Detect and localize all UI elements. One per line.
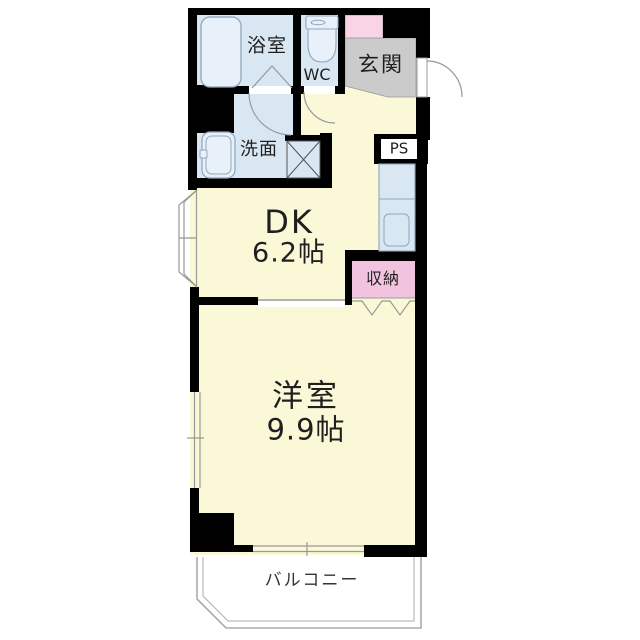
- wall-left-lower: [190, 488, 199, 552]
- toilet-icon: [306, 16, 338, 62]
- wall-wc-right: [338, 8, 345, 93]
- wall-bath-wc: [293, 8, 301, 141]
- room-label-dk: DK: [264, 206, 314, 238]
- wall-wc-bottom: [335, 86, 345, 94]
- room-label-balcony: バルコニー: [265, 573, 360, 590]
- floorplan-drawing: [0, 0, 640, 640]
- entry-shoe-cabinet: [345, 15, 383, 38]
- room-area-western-room: 9.9帖: [266, 416, 345, 445]
- wall-under-kitchen: [345, 250, 427, 261]
- washbasin-icon: [200, 132, 235, 178]
- room-label-storage: 収納: [366, 271, 400, 287]
- wall-bottom-right: [364, 545, 427, 557]
- wall-bottom-left: [234, 545, 253, 552]
- wall-right-main: [415, 164, 427, 557]
- room-label-bathroom: 浴室: [247, 37, 287, 56]
- room-label-washroom: 洗面: [240, 141, 278, 159]
- room-label-toilet: WC: [304, 67, 331, 83]
- room-label-western-room: 洋室: [272, 382, 340, 413]
- wall-step: [199, 513, 234, 552]
- washer-space-icon: [287, 141, 320, 178]
- wall-washer-right: [320, 133, 332, 188]
- room-area-dk: 6.2帖: [252, 240, 326, 267]
- wall-bath-bottom-a: [234, 86, 249, 94]
- wall-bath-bottom-b: [291, 86, 304, 94]
- wall-right-door-side: [416, 97, 430, 140]
- door-arc-entrance: [427, 61, 462, 97]
- wall-washer-top: [285, 135, 322, 141]
- wall-left-mid: [190, 287, 199, 392]
- balcony-outline: [197, 557, 421, 628]
- bathtub-icon: [201, 17, 241, 87]
- wall-right-upper: [416, 8, 430, 58]
- wall-closet-left: [345, 250, 352, 305]
- wall-partition: [197, 297, 258, 305]
- floorplan-canvas: 浴室 WC 玄関 洗面 PS DK 6.2帖 洋室 9.9帖 収納 バルコニー: [0, 0, 640, 640]
- entrance-door-leaf: [417, 58, 427, 97]
- doorway-bathroom: [249, 86, 291, 94]
- doorway-wc: [304, 86, 335, 94]
- wall-washroom-bottom: [188, 178, 332, 188]
- room-label-entrance: 玄関: [358, 55, 404, 76]
- room-label-pipe-space: PS: [390, 142, 409, 157]
- wall-bath-block: [188, 85, 234, 133]
- kitchen-counter-icon: [379, 164, 415, 251]
